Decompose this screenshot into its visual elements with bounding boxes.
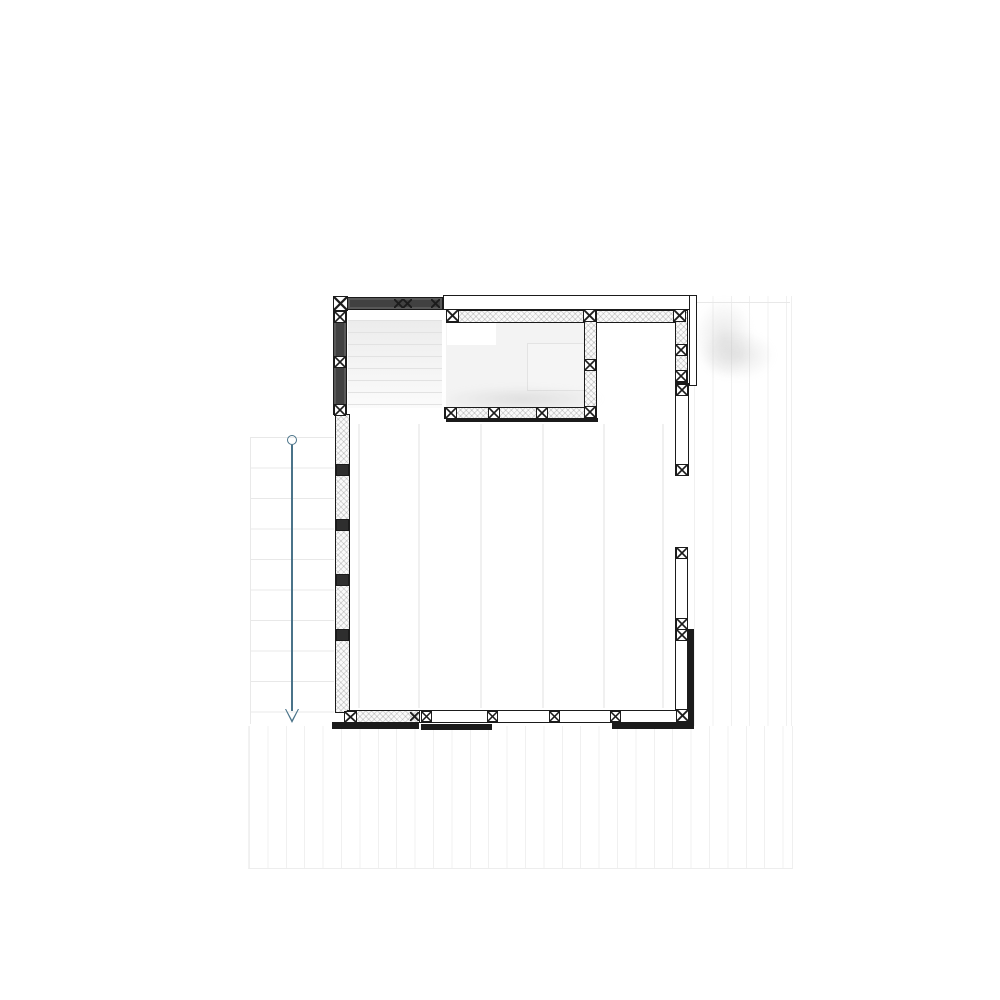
post[interactable] [584,406,596,418]
edge-shadow-line [697,302,790,303]
upper-room-white-box [447,322,496,345]
top-wall[interactable] [443,295,693,310]
left-wall-post[interactable] [336,464,349,476]
bottom-rim-mid[interactable] [421,724,492,730]
corner-post[interactable] [676,709,689,722]
stairs-area [348,320,442,408]
left-wall-post[interactable] [336,574,349,586]
post[interactable] [583,309,596,322]
joist-line [662,424,664,708]
stud-mark[interactable] [431,299,440,308]
mid-wall-band[interactable] [446,418,598,422]
left-wall[interactable] [335,414,350,713]
post[interactable] [676,547,688,559]
left-wall-post[interactable] [336,629,349,641]
post[interactable] [584,359,596,371]
left-wall-post[interactable] [336,519,349,531]
upper-room-inner-box [527,343,586,391]
post[interactable] [488,407,500,419]
design-canvas[interactable] [0,0,1000,1000]
post[interactable] [549,711,560,722]
dimension-line[interactable] [291,445,293,711]
bottom-rim-right[interactable] [612,722,694,729]
corner-post[interactable] [333,296,348,311]
joist-line [603,424,605,708]
post[interactable] [673,309,686,322]
dimension-handle-circle[interactable] [287,435,297,445]
stud-mark[interactable] [403,299,412,308]
joist-line [542,424,544,708]
post[interactable] [536,407,548,419]
post[interactable] [610,711,621,722]
top-interior-wall[interactable] [446,310,688,323]
joist-line [358,424,360,708]
post[interactable] [445,407,457,419]
post[interactable] [675,344,687,356]
post[interactable] [487,711,498,722]
corner-post[interactable] [344,711,357,723]
right-outer-wall[interactable] [689,295,697,386]
stud-mark[interactable] [410,712,419,721]
post[interactable] [676,464,688,476]
plan-layer [0,0,1000,1000]
shadow-smudge [700,330,775,380]
right-wall-segment-a[interactable] [675,383,689,476]
post[interactable] [446,309,459,322]
post[interactable] [334,356,346,368]
dimension-arrow-icon[interactable] [285,709,299,723]
post[interactable] [676,629,688,641]
bottom-rim-left[interactable] [332,722,419,729]
joist-line [480,424,482,708]
post[interactable] [421,711,432,722]
post[interactable] [334,404,346,416]
post[interactable] [675,370,687,382]
post[interactable] [676,384,688,396]
post[interactable] [334,311,346,323]
joist-line [418,424,420,708]
stud-mark[interactable] [394,299,403,308]
